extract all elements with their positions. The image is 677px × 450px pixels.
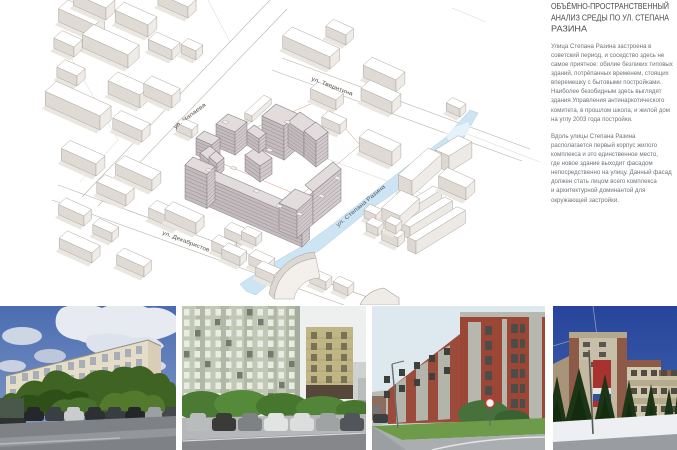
svg-text:РАЗИНА: РАЗИНА bbox=[551, 24, 587, 34]
svg-text:ОБЪЁМНО-ПРОСТРАНСТВЕННЫЙ: ОБЪЁМНО-ПРОСТРАНСТВЕННЫЙ bbox=[551, 0, 669, 11]
svg-text:АНАЛИЗ СРЕДЫ ПО УЛ. СТЕПАНА: АНАЛИЗ СРЕДЫ ПО УЛ. СТЕПАНА bbox=[551, 12, 669, 22]
